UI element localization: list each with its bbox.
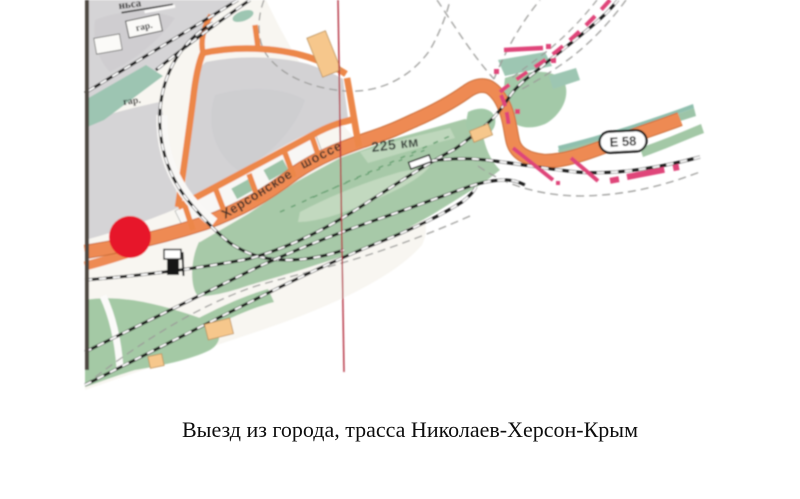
svg-text:Выезд из города, трасса Никола: Выезд из города, трасса Николаев-Херсон-… [182,417,638,442]
svg-text:E 58: E 58 [609,133,636,149]
